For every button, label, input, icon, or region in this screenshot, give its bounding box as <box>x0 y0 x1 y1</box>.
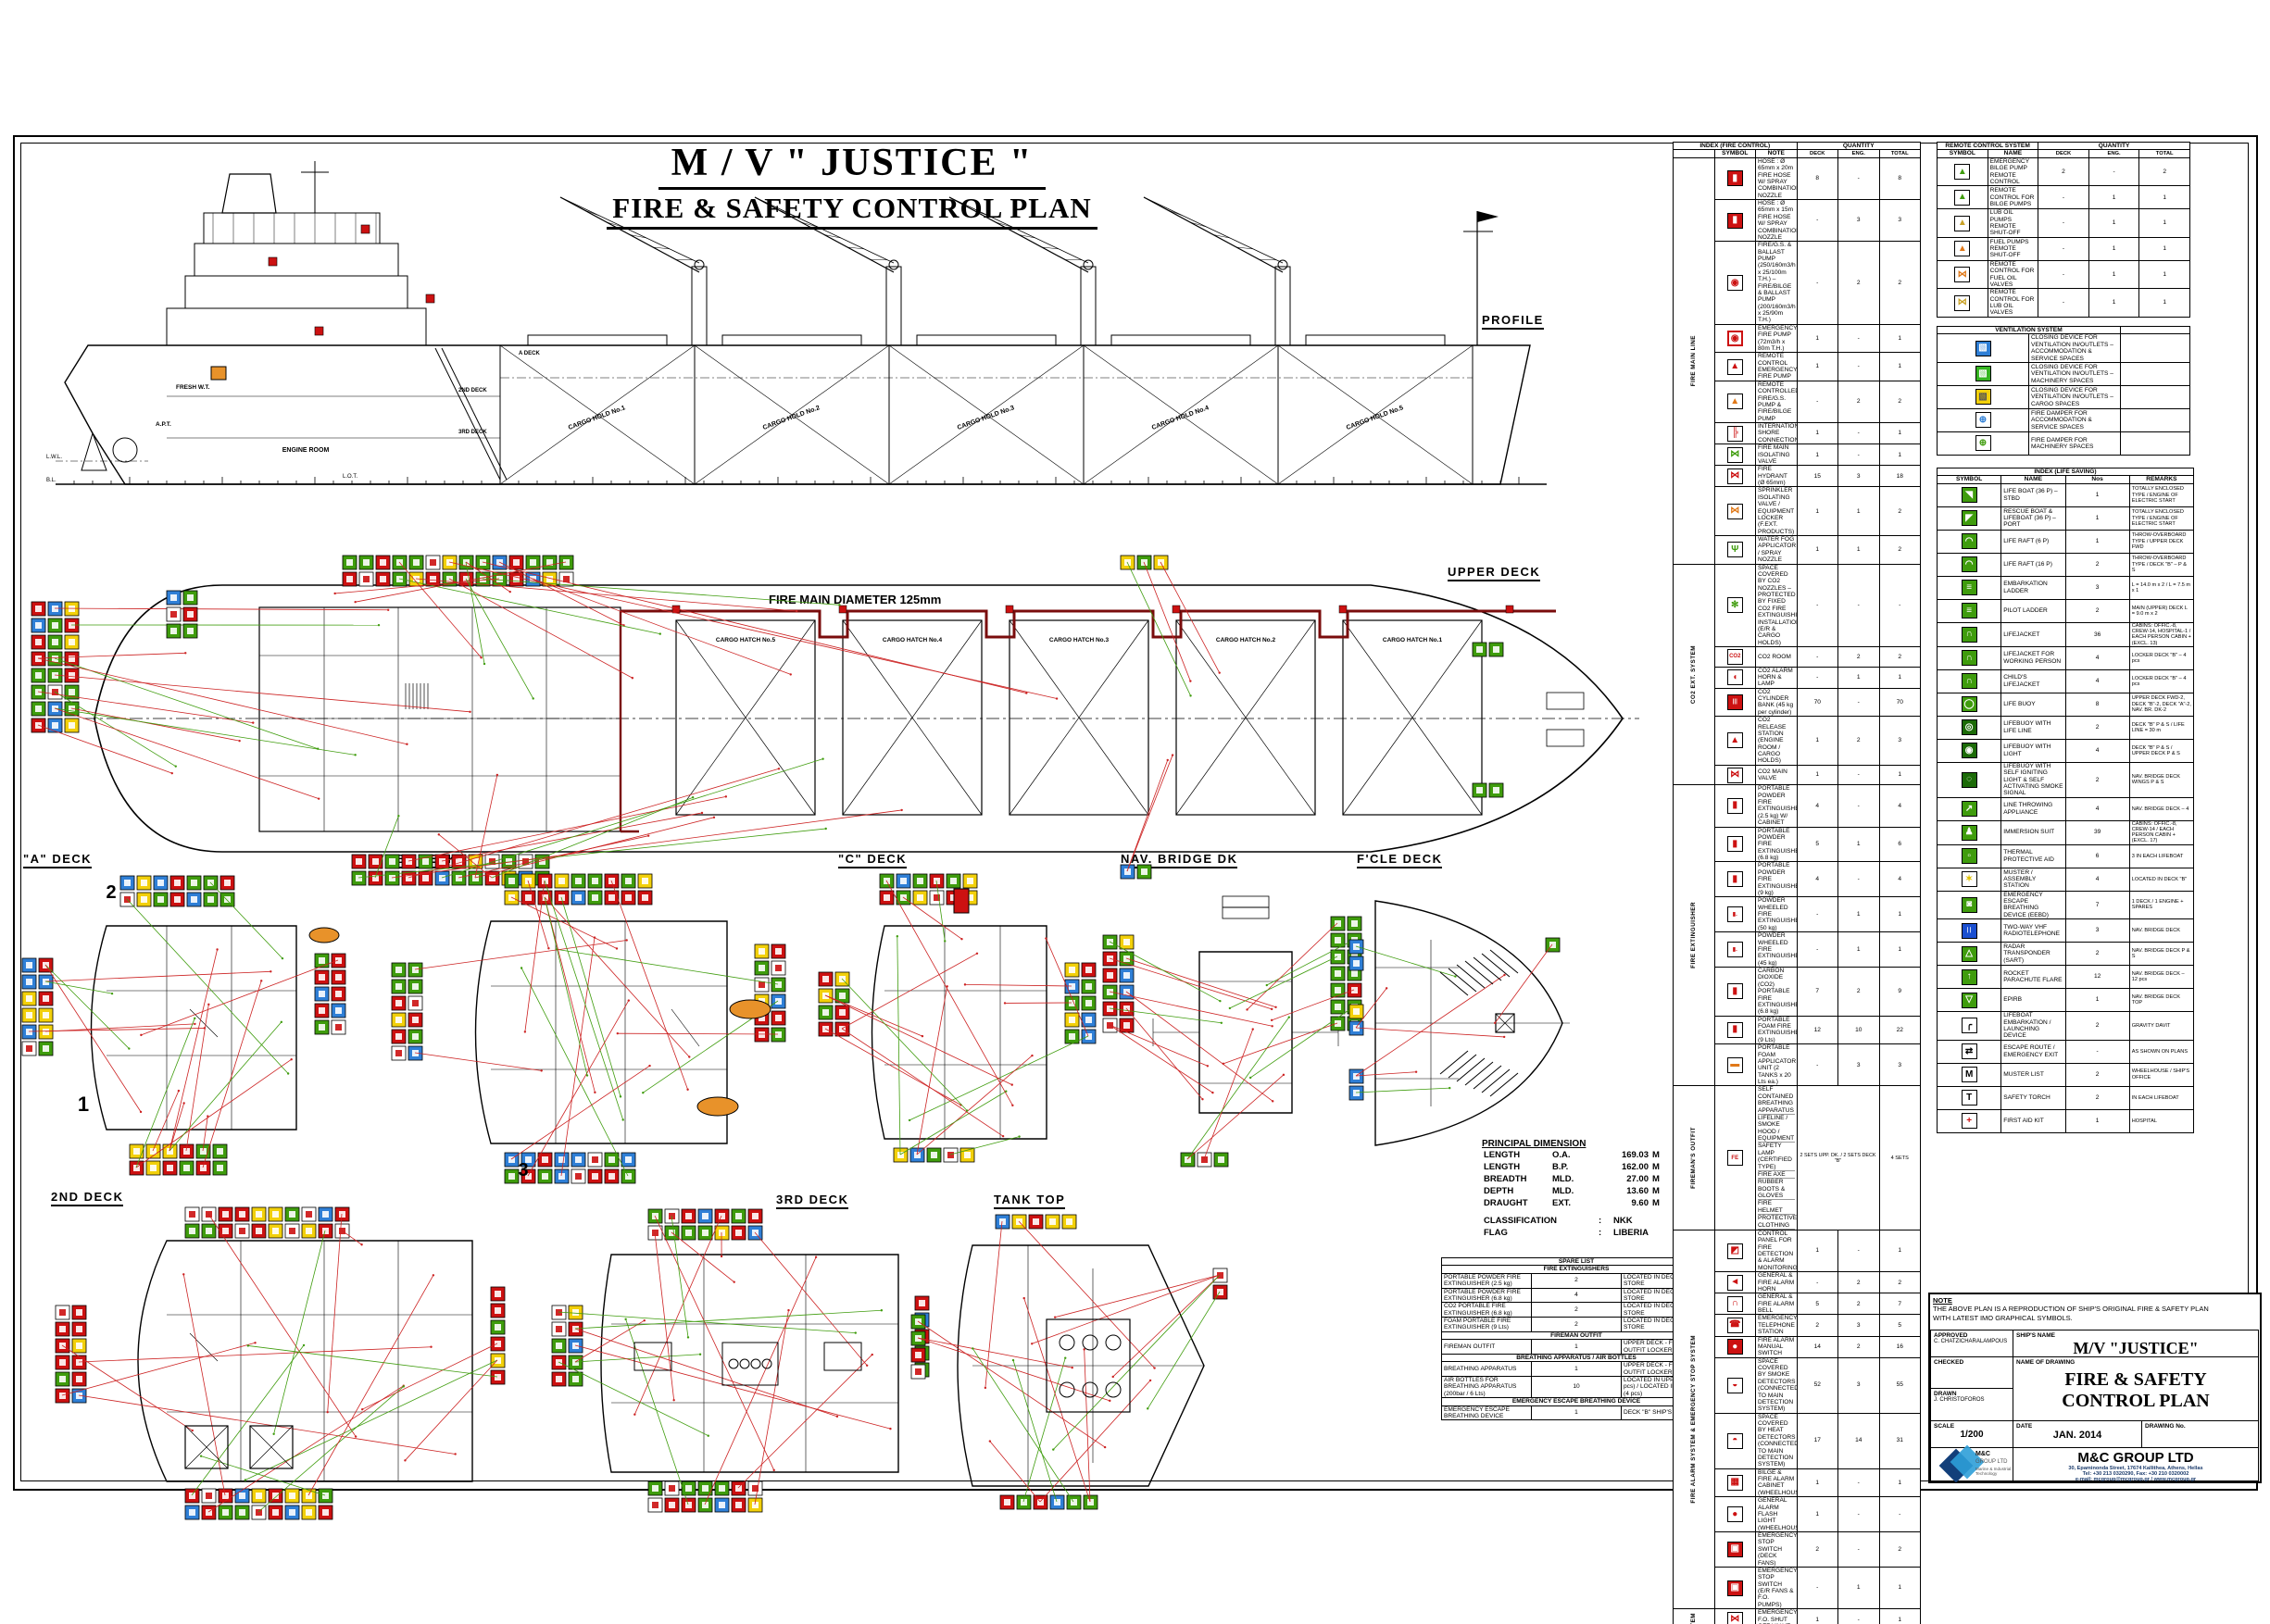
pilot-icon: ≡ <box>1962 603 1977 618</box>
table-row: △RADAR TRANSPONDER (SART)2NAV. BRIDGE DE… <box>1938 943 2194 966</box>
b-deck-plan: 3 <box>384 870 829 1190</box>
ventilation-table: VENTILATION SYSTEM▧CLOSING DEVICE FOR VE… <box>1937 326 2190 456</box>
drawn-value: J. CHRISTOFOROS <box>1934 1397 2010 1403</box>
fire-hose-icon: ▮ <box>1727 213 1743 229</box>
table-header: INDEX (FIRE CONTROL)QUANTITY <box>1674 143 1921 150</box>
mlist-icon: M <box>1962 1067 1977 1082</box>
vhf-icon: ∣∣ <box>1962 923 1977 939</box>
c-deck-plan <box>815 870 1121 1190</box>
table-row: ◠LIFE RAFT (16 P)2THROW-OVERBOARD TYPE /… <box>1938 553 2194 576</box>
table-row: FIRE EXTINGUISHER▮PORTABLE POWDER FIRE E… <box>1674 785 1921 827</box>
rescue-icon: ◤ <box>1962 510 1977 526</box>
fcle-deck-plan <box>1348 884 1588 1162</box>
life-saving-index-block: INDEX (LIFE SAVING)SYMBOLNAMENosREMARKS◥… <box>1937 468 2194 1133</box>
tank-top-plan <box>908 1213 1241 1518</box>
valve-or-icon: ⋈ <box>1727 504 1743 519</box>
table-row: ▫THERMAL PROTECTIVE AID63 IN EACH LIFEBO… <box>1938 844 2194 868</box>
table-row: ◤RESCUE BOAT & LIFEBOAT (36 P) – PORT1TO… <box>1938 506 2194 530</box>
svg-text:CARGO HATCH No.5: CARGO HATCH No.5 <box>716 637 776 643</box>
svg-text:A DECK: A DECK <box>519 351 540 356</box>
drawn-label: DRAWN <box>1934 1391 2010 1397</box>
tri-red-icon: ▲ <box>1727 359 1743 375</box>
table-row: ⋈REMOTE CONTROL FOR LUB OIL VALVES-11 <box>1938 289 2190 318</box>
horn-icon: ◄ <box>1727 1275 1743 1291</box>
ext-icon: ▮ <box>1727 836 1743 852</box>
buoysmoke-icon: ◌ <box>1962 772 1977 788</box>
note-heading: NOTE <box>1933 1296 2255 1305</box>
hydrant-icon: ⋈ <box>1727 468 1743 484</box>
heat-icon: ◓ <box>1727 1433 1743 1449</box>
suit-icon: ♟ <box>1962 825 1977 841</box>
phone-icon: ☎ <box>1727 1318 1743 1333</box>
ext-wh-icon: ▮. <box>1727 906 1743 922</box>
r-tri3-icon: ▲ <box>1954 216 1970 231</box>
spare-list-table: SPARE LISTFIRE EXTINGUISHERSPORTABLE POW… <box>1441 1257 1712 1420</box>
table-row: ≡EMBARKATION LADDER3L = 14.0 m x 2 / L =… <box>1938 576 2194 599</box>
dimension-row: LENGTHO.A.169.03M <box>1482 1149 1673 1161</box>
svg-text:CARGO HOLD No.2: CARGO HOLD No.2 <box>762 405 821 431</box>
remote-control-table: REMOTE CONTROL SYSTEMQUANTITYSYMBOLNAMED… <box>1937 142 2190 318</box>
table-row: PORTABLE POWDER FIRE EXTINGUISHER (2.5 k… <box>1442 1273 1712 1288</box>
eshut-icon: ⋈ <box>1727 1612 1743 1624</box>
table-row: ◌LIFEBUOY WITH SELF IGNITING LIGHT & SEL… <box>1938 762 2194 797</box>
table-row: ◉LIFEBUOY WITH LIGHT4DECK "B" P & S / UP… <box>1938 739 2194 762</box>
fire-hose-icon: ▮ <box>1727 170 1743 186</box>
a-deck-plan: 12 <box>19 870 389 1181</box>
table-row: CO2 EXT. SYSTEM✻SPACE COVERED BY CO2 NOZ… <box>1674 564 1921 647</box>
estop-icon: ▣ <box>1727 1542 1743 1557</box>
linethrow-icon: ↗ <box>1962 801 1977 817</box>
table-row: FIREMAN OUTFIT1UPPER DECK - FIREMAN OUTF… <box>1442 1340 1712 1355</box>
table-row: CO2 PORTABLE FIRE EXTINGUISHER (6.8 kg)2… <box>1442 1303 1712 1318</box>
table-row: ⊕FIRE DAMPER FOR MACHINERY SPACES <box>1938 431 2190 455</box>
table-row: ⋈REMOTE CONTROL FOR FUEL OIL VALVES-11 <box>1938 260 2190 289</box>
table-row: ✶MUSTER / ASSEMBLY STATION4LOCATED IN DE… <box>1938 868 2194 891</box>
tank-top-label: TANK TOP <box>994 1193 1065 1209</box>
svg-text:CARGO HOLD No.3: CARGO HOLD No.3 <box>957 405 1016 431</box>
table-row: ╭LIFEBOAT EMBARKATION / LAUNCHING DEVICE… <box>1938 1012 2194 1041</box>
group-label: FIRE ALARM SYSTEM & EMERGENCY STOP SYSTE… <box>1690 1335 1697 1504</box>
checked-label: CHECKED <box>1934 1359 2010 1366</box>
sart-icon: △ <box>1962 946 1977 962</box>
fe-icon: FE <box>1727 1150 1743 1166</box>
drawing-name-label: NAME OF DRAWING <box>2016 1359 2075 1366</box>
v-damp2-icon: ⊕ <box>1975 435 1991 451</box>
table-row: +FIRST AID KIT1HOSPITAL <box>1938 1109 2194 1132</box>
eebd-icon: ◙ <box>1962 897 1977 913</box>
ext-icon: ▮ <box>1727 798 1743 814</box>
co2-horn-icon: ◖ <box>1727 669 1743 685</box>
table-row: ▧CLOSING DEVICE FOR VENTILATION IN/OUTLE… <box>1938 385 2190 408</box>
svg-text:A.P.T.: A.P.T. <box>156 421 171 428</box>
v-damp1-icon: ⊕ <box>1975 412 1991 428</box>
buoyline-icon: ◎ <box>1962 719 1977 735</box>
drawing-no-label: DRAWING No. <box>2145 1423 2186 1430</box>
co2-bat-icon: ||| <box>1727 694 1743 710</box>
third-deck-plan <box>546 1204 945 1528</box>
table-row: EMERGENCY ESCAPE BREATHING DEVICE1DECK "… <box>1442 1405 1712 1420</box>
logo-sub: GROUP LTD <box>1975 1459 2007 1465</box>
dimension-row: LENGTHB.P.162.00M <box>1482 1161 1673 1173</box>
torch-icon: T <box>1962 1090 1977 1106</box>
lifeboat-icon: ◥ <box>1962 487 1977 503</box>
raft-icon: ◠ <box>1962 533 1977 549</box>
group-label: CO2 EXT. SYSTEM <box>1690 645 1697 704</box>
r-tri2-icon: ▲ <box>1954 190 1970 206</box>
svg-text:CARGO HOLD No.4: CARGO HOLD No.4 <box>1151 405 1210 431</box>
table-row: ∩LIFEJACKET36CABINS: OFFIC.-8, CREW-14, … <box>1938 622 2194 646</box>
table-row: ↑ROCKET PARACHUTE FLARE12NAV. BRIDGE DEC… <box>1938 966 2194 989</box>
group-label: FIRE MAIN LINE <box>1690 335 1697 386</box>
bell-icon: ∩ <box>1727 1296 1743 1312</box>
svg-text:2: 2 <box>106 882 116 903</box>
table-row: ⊕FIRE DAMPER FOR ACCOMMODATION & SERVICE… <box>1938 408 2190 431</box>
table-row: FIRE ALARM SYSTEM & EMERGENCY STOP SYSTE… <box>1674 1230 1921 1271</box>
second-deck-plan <box>46 1204 519 1528</box>
thermal-icon: ▫ <box>1962 848 1977 864</box>
buoy-icon: ◯ <box>1962 696 1977 712</box>
note-line-1: THE ABOVE PLAN IS A REPRODUCTION OF SHIP… <box>1933 1305 2255 1313</box>
cab-icon: ▦ <box>1727 1475 1743 1491</box>
ship-name-label: SHIP'S NAME <box>2016 1332 2055 1339</box>
jacket-icon: ∩ <box>1962 627 1977 643</box>
table-row: ▧CLOSING DEVICE FOR VENTILATION IN/OUTLE… <box>1938 334 2190 363</box>
svg-text:CARGO HOLD No.1: CARGO HOLD No.1 <box>568 405 627 431</box>
classification-row: CLASSIFICATION : NKK <box>1482 1215 1650 1227</box>
svg-text:3: 3 <box>518 1160 528 1181</box>
ladder-icon: ≡ <box>1962 580 1977 595</box>
flash-icon: ● <box>1727 1506 1743 1522</box>
table-row: FIRE MAIN LINE▮HOSE : Ø 65mm x 20m FIRE … <box>1674 157 1921 199</box>
wfog-icon: Ψ <box>1727 542 1743 557</box>
dimension-row: BREADTHMLD.27.00M <box>1482 1173 1673 1185</box>
svg-text:CARGO HOLD No.5: CARGO HOLD No.5 <box>1346 405 1405 431</box>
ext-foam-icon: ▮ <box>1727 1022 1743 1038</box>
table-row: ▲FUEL PUMPS REMOTE SHUT-OFF-11 <box>1938 237 2190 260</box>
ext-co2-icon: ▮ <box>1727 983 1743 999</box>
drawing-sheet: { "title": "M / V \" JUSTICE \"", "subti… <box>0 0 2270 1624</box>
foam-app-icon: ▬ <box>1727 1057 1743 1073</box>
table-row: FIREMAN'S OUTFITFESELF CONTAINED BREATHI… <box>1674 1086 1921 1230</box>
table-row: ↗LINE THROWING APPLIANCE4NAV. BRIDGE DEC… <box>1938 797 2194 820</box>
svg-text:B.L.: B.L. <box>46 478 56 483</box>
table-row: ▲LUB OIL PUMPS REMOTE SHUT-OFF-11 <box>1938 209 2190 238</box>
r-tri4-icon: ▲ <box>1954 241 1970 256</box>
classification-label: CLASSIFICATION <box>1482 1215 1597 1227</box>
smoke-icon: ◒ <box>1727 1378 1743 1393</box>
svg-text:CARGO HATCH No.4: CARGO HATCH No.4 <box>883 637 943 643</box>
davit-icon: ╭ <box>1962 1018 1977 1033</box>
flag-row: FLAG : LIBERIA <box>1482 1227 1650 1239</box>
epump-icon: ◉ <box>1727 331 1743 346</box>
table-row: ◥LIFE BOAT (36 P) – STBD1TOTALLY ENCLOSE… <box>1938 483 2194 506</box>
table-row: EMERG. SYSTEM⋈EMERGENCY F.O. SHUT OFF VA… <box>1674 1609 1921 1624</box>
ventilation-block: VENTILATION SYSTEM▧CLOSING DEVICE FOR VE… <box>1937 326 2190 456</box>
v-yellow-icon: ▧ <box>1975 389 1991 405</box>
approved-label: APPROVED <box>1934 1332 2010 1339</box>
cpanel-icon: ◩ <box>1727 1243 1743 1259</box>
table-row: AIR BOTTLES FOR BREATHING APPARATUS (200… <box>1442 1377 1712 1398</box>
faid-icon: + <box>1962 1113 1977 1129</box>
svg-text:2ND DECK: 2ND DECK <box>458 388 487 394</box>
jacket-icon: ∩ <box>1962 650 1977 666</box>
classification-value: NKK <box>1612 1215 1650 1227</box>
logo-name: M&C <box>1975 1451 1990 1457</box>
table-row: FOAM PORTABLE FIRE EXTINGUISHER (9 Lts)2… <box>1442 1318 1712 1332</box>
v-blue-icon: ▧ <box>1975 341 1991 356</box>
spare-list-block: SPARE LISTFIRE EXTINGUISHERSPORTABLE POW… <box>1441 1257 1712 1420</box>
ext-icon: ▮ <box>1727 871 1743 887</box>
ship-name-value: M/V "JUSTICE" <box>2016 1339 2255 1358</box>
flag-value: LIBERIA <box>1612 1227 1650 1239</box>
scale-label: SCALE <box>1934 1423 1954 1430</box>
dimension-row: DEPTHMLD.13.60M <box>1482 1185 1673 1197</box>
date-label: DATE <box>2016 1423 2032 1430</box>
upper-deck-plan: CARGO HATCH No.5CARGO HATCH No.4CARGO HA… <box>28 554 1660 883</box>
principal-dimension-table: LENGTHO.A.169.03MLENGTHB.P.162.00MBREADT… <box>1482 1149 1673 1209</box>
dimension-row: DRAUGHTEXT.9.60M <box>1482 1197 1673 1209</box>
logo-tagline: Marine & Industrial Technology <box>1975 1467 2013 1476</box>
muster-icon: ✶ <box>1962 871 1977 887</box>
table-row: ◙EMERGENCY ESCAPE BREATHING DEVICE (EEBD… <box>1938 891 2194 919</box>
group-label: FIREMAN'S OUTFIT <box>1690 1127 1697 1189</box>
epirb-icon: ▽ <box>1962 993 1977 1008</box>
drawing-name-1: FIRE & SAFETY <box>2016 1369 2255 1391</box>
svg-text:ENGINE ROOM: ENGINE ROOM <box>282 447 330 454</box>
table-row: ▲REMOTE CONTROL FOR BILGE PUMPS-11 <box>1938 186 2190 209</box>
flag-label: FLAG <box>1482 1227 1597 1239</box>
table-row: MMUSTER LIST2WHEELHOUSE / SHIP'S OFFICE <box>1938 1063 2194 1086</box>
table-row: ⇄ESCAPE ROUTE / EMERGENCY EXIT-AS SHOWN … <box>1938 1040 2194 1063</box>
ship-profile-drawing: L.W.L.B.L.CARGO HOLD No.1CARGO HOLD No.2… <box>37 156 1574 544</box>
co2-room-icon: CO2 <box>1727 649 1743 665</box>
table-row: ◠LIFE RAFT (6 P)1THROW-OVERBOARD TYPE / … <box>1938 530 2194 553</box>
drawing-name-2: CONTROL PLAN <box>2016 1391 2255 1412</box>
table-row: ♟IMMERSION SUIT39CABINS: OFFIC.-8, CREW-… <box>1938 820 2194 844</box>
table-row: ∣∣TWO-WAY VHF RADIOTELEPHONE3NAV. BRIDGE… <box>1938 919 2194 943</box>
table-row: ∩CHILD'S LIFEJACKET4LOCKER DECK "B" – 4 … <box>1938 669 2194 693</box>
estop-icon: ▣ <box>1727 1580 1743 1596</box>
svg-text:1: 1 <box>78 1093 89 1116</box>
table-row: ≡PILOT LADDER2MAIN (UPPER) DECK L = 9.0 … <box>1938 599 2194 622</box>
table-row: ◯LIFE BUOY8UPPER DECK FWD-2, DECK "B"-2,… <box>1938 693 2194 716</box>
scale-value: 1/200 <box>1934 1430 2010 1440</box>
table-subheader: SYMBOLNOTEDECKENG.TOTAL <box>1674 150 1921 157</box>
raft-icon: ◠ <box>1962 556 1977 572</box>
tri-red2-icon: ▲ <box>1727 394 1743 409</box>
table-row: ∩LIFEJACKET FOR WORKING PERSON4LOCKER DE… <box>1938 646 2194 669</box>
svg-text:CARGO HATCH No.3: CARGO HATCH No.3 <box>1049 637 1110 643</box>
date-value: JAN. 2014 <box>2016 1430 2138 1441</box>
valve-gr-icon: ⋈ <box>1727 447 1743 463</box>
svg-text:L.O.T.: L.O.T. <box>343 474 357 480</box>
table-row: ◎LIFEBUOY WITH LIFE LINE2DECK "B" P & S … <box>1938 716 2194 739</box>
svg-text:CARGO HATCH No.2: CARGO HATCH No.2 <box>1216 637 1276 643</box>
jacketc-icon: ∩ <box>1962 673 1977 689</box>
table-row: ▧CLOSING DEVICE FOR VENTILATION IN/OUTLE… <box>1938 362 2190 385</box>
group-label: EMERG. SYSTEM <box>1690 1613 1697 1624</box>
table-row: TSAFETY TORCH2IN EACH LIFEBOAT <box>1938 1086 2194 1109</box>
company-email: e-mail: mcgroup@mcgroup.gr / www.mcgroup… <box>2016 1477 2255 1482</box>
remote-control-block: REMOTE CONTROL SYSTEMQUANTITYSYMBOLNAMED… <box>1937 142 2190 318</box>
flare-icon: ↑ <box>1962 969 1977 985</box>
buoylight-icon: ◉ <box>1962 743 1977 758</box>
approved-value: C. CHATZICHARALAMPOUS <box>1934 1339 2010 1344</box>
pbutton-icon: ● <box>1727 1339 1743 1355</box>
fire-control-index-block: INDEX (FIRE CONTROL)QUANTITYSYMBOLNOTEDE… <box>1673 142 1921 1624</box>
title-block: NOTE THE ABOVE PLAN IS A REPRODUCTION OF… <box>1928 1293 2262 1483</box>
r-tri6-icon: ⋈ <box>1954 295 1970 311</box>
ext-wh-icon: ▮. <box>1727 942 1743 957</box>
note-line-2: WITH LATEST IMO GRAPHICAL SYMBOLS. <box>1933 1314 2255 1322</box>
co2-valve-icon: ⋈ <box>1727 768 1743 783</box>
group-label: FIRE EXTINGUISHER <box>1690 902 1697 968</box>
exit-icon: ⇄ <box>1962 1043 1977 1059</box>
table-row: ▽EPIRB1NAV. BRIDGE DECK TOP <box>1938 989 2194 1012</box>
svg-text:FIRE MAIN DIAMETER 125mm: FIRE MAIN DIAMETER 125mm <box>769 593 941 606</box>
r-tri5-icon: ⋈ <box>1954 267 1970 282</box>
pump-icon: ◉ <box>1727 275 1743 291</box>
table-row: PORTABLE POWDER FIRE EXTINGUISHER (6.8 k… <box>1442 1288 1712 1303</box>
v-green-icon: ▧ <box>1975 366 1991 381</box>
fire-control-index-table: INDEX (FIRE CONTROL)QUANTITYSYMBOLNOTEDE… <box>1673 142 1921 1624</box>
svg-text:3RD DECK: 3RD DECK <box>458 430 487 435</box>
r-tri1-icon: ▲ <box>1954 164 1970 180</box>
svg-text:L.W.L.: L.W.L. <box>46 455 62 460</box>
svg-text:FRESH W.T.: FRESH W.T. <box>176 384 210 391</box>
life-saving-index-table: INDEX (LIFE SAVING)SYMBOLNAMENosREMARKS◥… <box>1937 468 2194 1133</box>
shore-icon: ╠ <box>1727 426 1743 442</box>
company-name: M&C GROUP LTD <box>2016 1450 2255 1466</box>
co2-rel-icon: ▲ <box>1727 732 1743 748</box>
nav-bridge-deck-plan <box>1097 870 1375 1190</box>
co2-space-icon: ✻ <box>1727 597 1743 613</box>
table-row: ▲EMERGENCY BILGE PUMP REMOTE CONTROL2-2 <box>1938 157 2190 186</box>
table-row: BREATHING APPARATUS1UPPER DECK - FIREMAN… <box>1442 1362 1712 1377</box>
svg-text:CARGO HATCH No.1: CARGO HATCH No.1 <box>1383 637 1443 643</box>
